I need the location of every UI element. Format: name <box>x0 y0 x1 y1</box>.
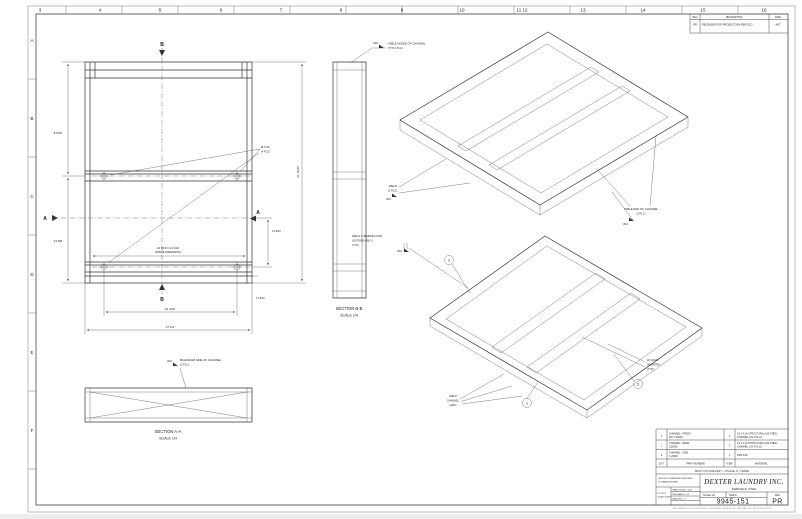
parts-header-item: ITEM <box>726 462 732 466</box>
iso-top-callout-left-line2: (2 PLC) <box>388 189 397 193</box>
parts-header-part: PART NUMBER <box>686 462 705 466</box>
zone-number: 11 12 <box>517 8 528 13</box>
dim-label-left-bottom: 13 5/8 <box>54 239 63 243</box>
dim-label-bottom-right: 1 13/16 <box>256 296 265 300</box>
size-label: SIZE D <box>729 494 737 497</box>
hole-callout-line2: (4 PLC) <box>261 150 270 154</box>
rev-column-label: REV <box>775 494 780 497</box>
iso-bottom-hole-callout-line3: (TYP) <box>647 367 654 371</box>
parts-header-material: MATERIAL <box>755 462 768 466</box>
zone-number: 13 <box>580 8 586 13</box>
iso-bottom-weld-callout-line1: WELD <box>449 394 457 398</box>
drawing-sheet: 3 4 5 6 7 8 9 10 11 12 13 14 15 16 A B C… <box>0 0 802 519</box>
weld-size-label: 3/16 <box>623 222 629 226</box>
dim-label-right-small: 2 13/16 <box>272 229 281 233</box>
iso-top-callout-right-line1: TABLE END OF CHANNEL <box>624 207 659 211</box>
iso-bottom-callout-left-line3: (TYP) <box>352 243 359 247</box>
section-mark-a-right: A <box>256 210 260 216</box>
parts-table-note: MUST CUT DUE ASSY - 1 PLACE, K: 7-30060 <box>695 469 750 473</box>
inside-dim-line2: (INSIDE DIMENSION) <box>155 250 181 254</box>
parts-row-mat2: CHANNEL C/S 4.00 LG <box>737 446 762 449</box>
section-bb-title: SECTION B-B <box>336 306 363 311</box>
zone-number: 14 <box>640 8 646 13</box>
section-aa-scale: SCALE 1/4 <box>159 437 177 441</box>
section-bb-callout-line1: TABLE INSIDE OF CHANNEL <box>388 42 426 46</box>
zone-letter: A <box>30 38 33 43</box>
iso-bottom-weld-callout-line3: (ARC) <box>449 403 456 407</box>
iso-bottom-callout-left-line2: (OUTSIDE ONLY) <box>352 239 373 243</box>
parts-row-part2: C20060 <box>669 446 678 449</box>
revision-col-date: DATE <box>775 16 782 19</box>
dim-label-right: 31 15/16 <box>296 166 300 178</box>
iso-bottom-hole-callout-line1: 4X HOLE <box>647 358 658 362</box>
do-not-scale-line1: DO NOT <box>658 493 667 495</box>
section-mark-b-bottom: B <box>160 297 164 303</box>
do-not-scale-line2: SCALE DWG <box>658 496 671 499</box>
weld-size-label: 3/16 <box>386 197 392 201</box>
tolerance-note-line2: TOLERANCES ARE: <box>658 481 679 484</box>
fine-print: THIS DRAWING IS THE PROPERTY OF DEXTER L… <box>672 507 773 510</box>
tolerance-fractions: FRACTIONS ± 1/16 <box>673 489 693 492</box>
weld-size-label: 3/16 <box>373 41 379 45</box>
parts-row-part2: 7-20060 <box>669 455 678 458</box>
tolerance-angles: ANGLES ± 1° <box>673 498 687 501</box>
tolerance-note-line1: UNLESS OTHERWISE SPECIFIED <box>658 478 693 480</box>
dim-label-bottom-inner: 21 3/16 <box>165 307 175 311</box>
balloon-number: 3 <box>637 382 639 386</box>
weld-size-label: 3/16 <box>167 359 173 363</box>
parts-header-qty: QTY <box>659 462 665 466</box>
balloon-number: 2 <box>448 258 450 262</box>
revision-description-value: RELEASED FOR PRODUCTION PER ECO <box>702 23 753 27</box>
company-city: FAIRFIELD, IOWA <box>732 487 757 491</box>
section-bb-callout-line2: (TYP 2 PLC) <box>388 46 403 50</box>
weld-size-label: 3/16 <box>397 249 403 253</box>
zone-letter: E <box>30 350 33 355</box>
zone-letter: B <box>30 116 33 121</box>
revision-date-value: 4/07 <box>775 23 781 27</box>
zone-letter: F <box>31 428 34 433</box>
iso-top-callout-left-line1: WELD <box>389 184 397 188</box>
drawing-number: 9945-151 <box>717 499 750 506</box>
iso-bottom-callout-left-line1: WELD 3 SIDES/FLOOR <box>352 234 382 238</box>
zone-number: 16 <box>761 8 767 13</box>
hole-callout-line1: Ø 7/16 <box>261 145 270 149</box>
drawing-canvas: 3 4 5 6 7 8 9 10 11 12 13 14 15 16 A B C… <box>0 0 802 519</box>
iso-bottom-weld-callout-line2: CHANNEL <box>447 399 460 403</box>
revision-code: PR <box>772 499 783 506</box>
parts-row-mat2: CHANNEL C/S 4.00 LG <box>737 436 762 439</box>
section-aa-callout-line2: (2 PLC) <box>180 363 189 367</box>
balloon-number: 1 <box>526 401 528 405</box>
dim-label-bottom-outer: 27 1/2 <box>166 325 175 329</box>
section-aa-callout-line1: BALANCED SIDE OF CHANNEL <box>180 358 222 362</box>
dim-label-left-top: 8 5/16 <box>54 131 63 135</box>
window-bottom-edge <box>0 514 802 519</box>
company-name: DEXTER LAUNDRY INC. <box>703 478 784 486</box>
zone-number: 15 <box>700 8 706 13</box>
section-bb-scale: SCALE 1/4 <box>340 314 358 318</box>
scale-label: SCALE 1/4 <box>703 494 715 497</box>
section-mark-b-top: B <box>160 42 164 48</box>
section-mark-a-left: A <box>43 216 47 222</box>
revision-col-rev: REV <box>693 16 698 19</box>
parts-row-part2: WC 7-20060 <box>669 436 683 439</box>
zone-number: 10 <box>459 8 465 13</box>
section-aa-title: SECTION A-A <box>155 429 182 434</box>
inside-dim-line1: 24 3/16 X 21 3/16 <box>157 246 180 250</box>
iso-bottom-hole-callout-line2: INVERTED <box>647 363 660 367</box>
revision-col-description: DESCRIPTION <box>726 16 743 19</box>
revision-rev-value: PR <box>693 23 697 27</box>
iso-top-callout-right-line2: (2 PLC) <box>637 212 646 216</box>
tolerance-decimals: DECIMALS ± .01 <box>673 493 690 496</box>
parts-row-mat1: HRS 3/16 <box>737 454 748 457</box>
